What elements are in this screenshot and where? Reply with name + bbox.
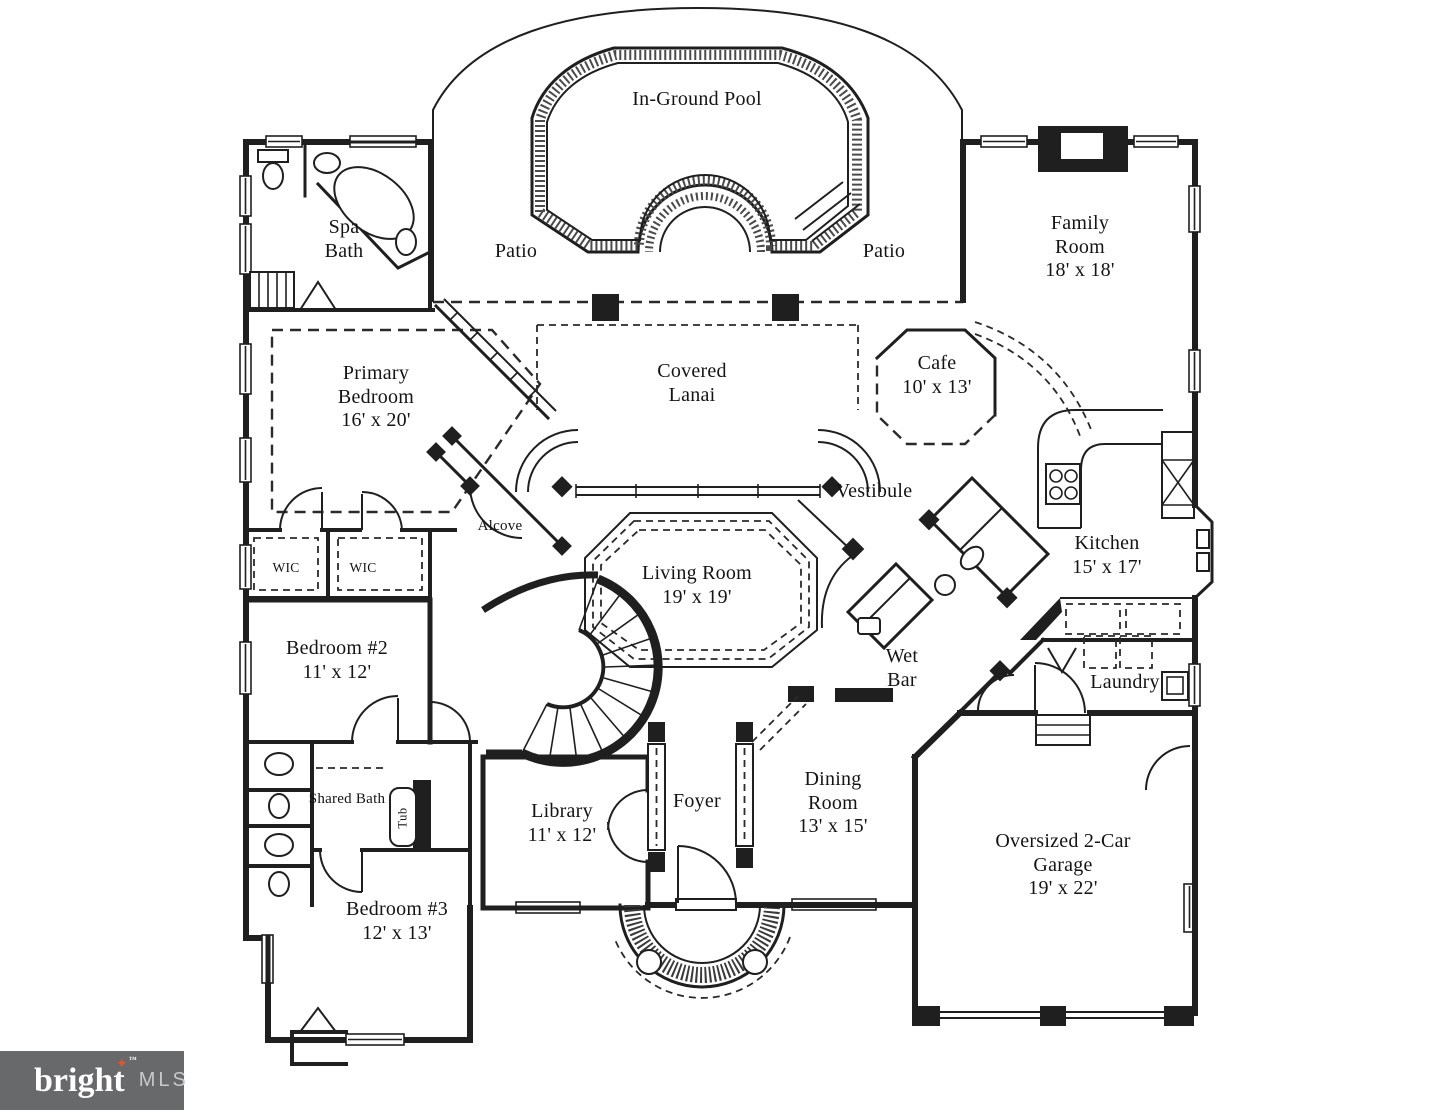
sink-icon <box>265 753 293 775</box>
room-label-family-room: Family Room18' x 18' <box>1034 212 1126 283</box>
room-label-dining-room: Dining Room13' x 15' <box>787 768 879 839</box>
porch-column-icon <box>743 950 767 974</box>
sink-icon <box>396 229 416 255</box>
pool-patio-area <box>433 8 963 321</box>
brightmls-logo: bright ✦ ™ MLS <box>0 1051 184 1110</box>
brightmls-wordmark: bright ✦ ™ <box>34 1064 125 1098</box>
room-label-bedroom-3: Bedroom #312' x 13' <box>317 898 477 945</box>
entry-porch <box>614 905 790 998</box>
kitchen-room <box>1020 410 1212 640</box>
living-room-room <box>585 513 817 750</box>
fireplace-icon <box>1038 126 1128 172</box>
shower-icon <box>250 272 294 308</box>
shared-bath-room <box>246 742 470 905</box>
brightmls-mls-text: MLS <box>139 1069 189 1092</box>
porch-column-icon <box>637 950 661 974</box>
room-label-laundry: Laundry <box>1070 671 1180 695</box>
toilet-icon <box>269 872 289 896</box>
room-label-spa-bath: Spa Bath <box>312 216 376 263</box>
foyer-entry <box>614 722 790 998</box>
room-label-vestibule: Vestibule <box>804 480 944 504</box>
sink-icon <box>314 153 340 173</box>
vestibule-passage <box>798 500 864 560</box>
room-label-wet-bar: Wet Bar <box>872 645 932 692</box>
room-label-primary-bedroom: Primary Bedroom16' x 20' <box>318 362 434 433</box>
cooktop-icon <box>1046 464 1080 504</box>
sink-icon <box>935 575 955 595</box>
toilet-icon <box>956 542 987 573</box>
floor-plan-drawing <box>0 0 1440 1113</box>
room-label-library: Library11' x 12' <box>507 800 617 847</box>
star-icon: ✦ <box>116 1058 128 1072</box>
room-label-covered-lanai: Covered Lanai <box>640 360 744 407</box>
room-label-wic-left: WIC <box>261 560 311 576</box>
trademark-symbol: ™ <box>129 1056 137 1064</box>
room-label-patio-left: Patio <box>466 240 566 264</box>
room-label-tub: Tub <box>396 807 411 828</box>
room-label-cafe: Cafe10' x 13' <box>882 352 992 399</box>
room-label-living-room: Living Room19' x 19' <box>617 562 777 609</box>
door-mark <box>300 282 336 310</box>
room-label-kitchen: Kitchen15' x 17' <box>1052 532 1162 579</box>
room-label-shared-bath: Shared Bath <box>277 791 417 809</box>
garage-steps <box>1036 715 1090 745</box>
room-label-alcove: Alcove <box>455 518 545 536</box>
room-label-foyer: Foyer <box>652 790 742 814</box>
room-label-garage: Oversized 2-Car Garage19' x 22' <box>973 830 1153 901</box>
brightmls-brand-text: bright <box>34 1062 125 1099</box>
room-label-patio-right: Patio <box>834 240 934 264</box>
toilet-icon <box>258 150 288 189</box>
covered-lanai-room <box>516 325 880 498</box>
room-label-pool: In-Ground Pool <box>632 88 762 112</box>
bar-sink-icon <box>858 618 880 634</box>
room-label-bedroom-2: Bedroom #211' x 12' <box>262 637 412 684</box>
room-label-wic-right: WIC <box>338 560 388 576</box>
bedroom-3-room <box>268 938 346 1064</box>
floor-plan-page: In-Ground Pool Patio Patio Spa Bath Fami… <box>0 0 1440 1113</box>
sink-icon <box>265 834 293 856</box>
